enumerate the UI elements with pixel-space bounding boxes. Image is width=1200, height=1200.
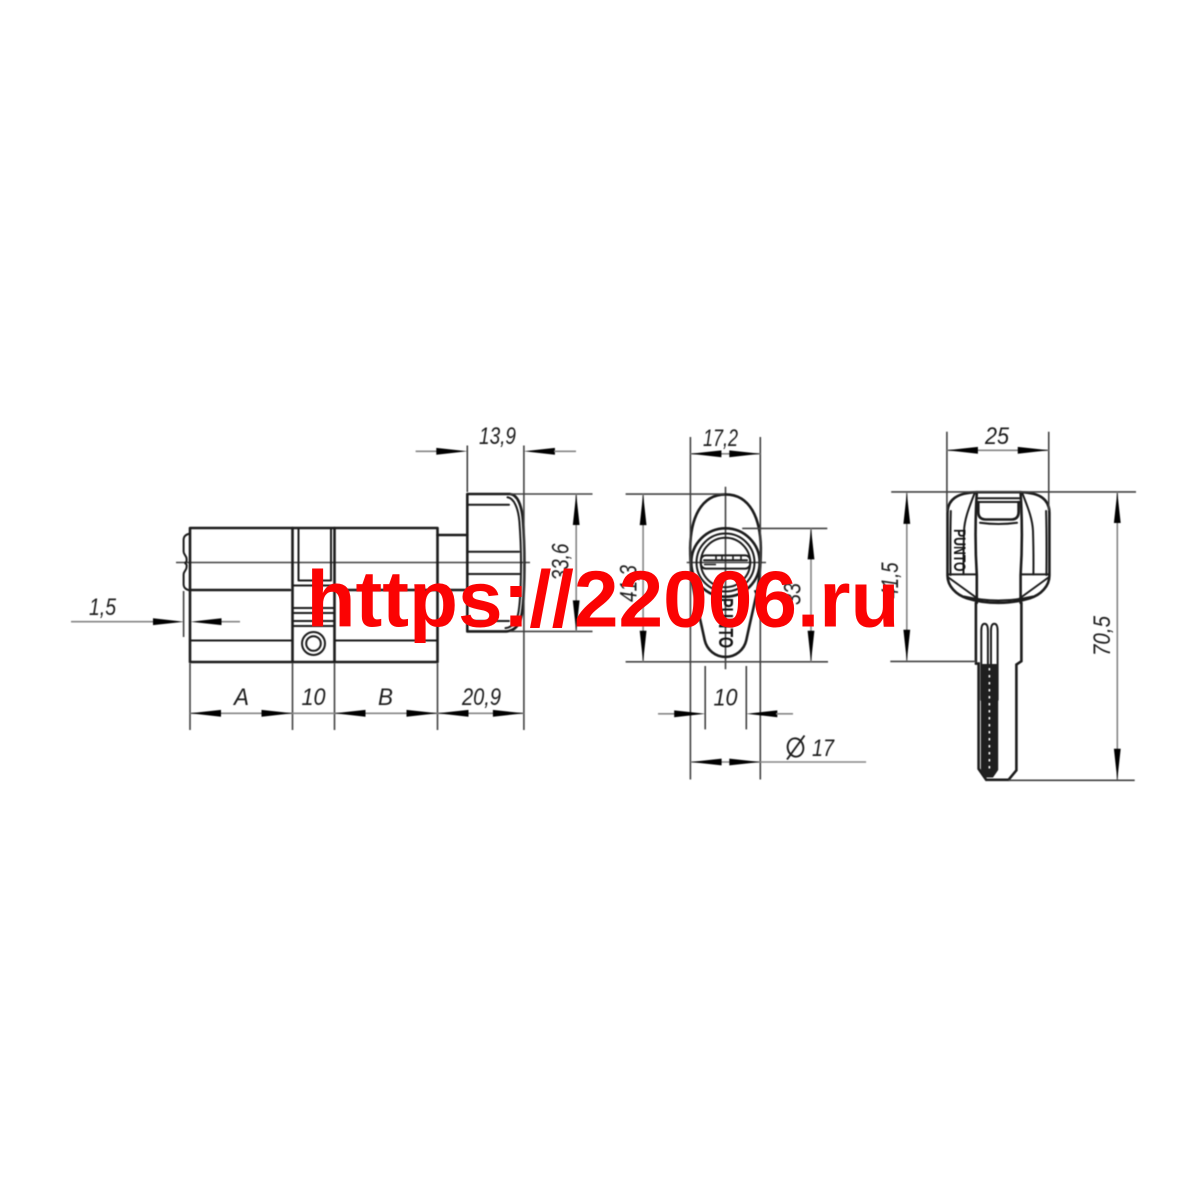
svg-text:70,5: 70,5 [1089, 615, 1116, 656]
svg-text:13,9: 13,9 [479, 423, 516, 450]
svg-text:10: 10 [302, 684, 327, 711]
svg-text:https://22006.ru: https://22006.ru [307, 555, 900, 644]
svg-text:1,5: 1,5 [89, 594, 117, 621]
svg-text:25: 25 [984, 423, 1009, 450]
svg-text:17,2: 17,2 [703, 425, 738, 452]
svg-text:10: 10 [714, 685, 739, 712]
svg-text:20,9: 20,9 [461, 684, 501, 711]
svg-text:PUNTO: PUNTO [950, 529, 969, 572]
svg-text:17: 17 [812, 735, 835, 762]
svg-text:B: B [378, 684, 393, 711]
svg-text:A: A [232, 684, 249, 711]
